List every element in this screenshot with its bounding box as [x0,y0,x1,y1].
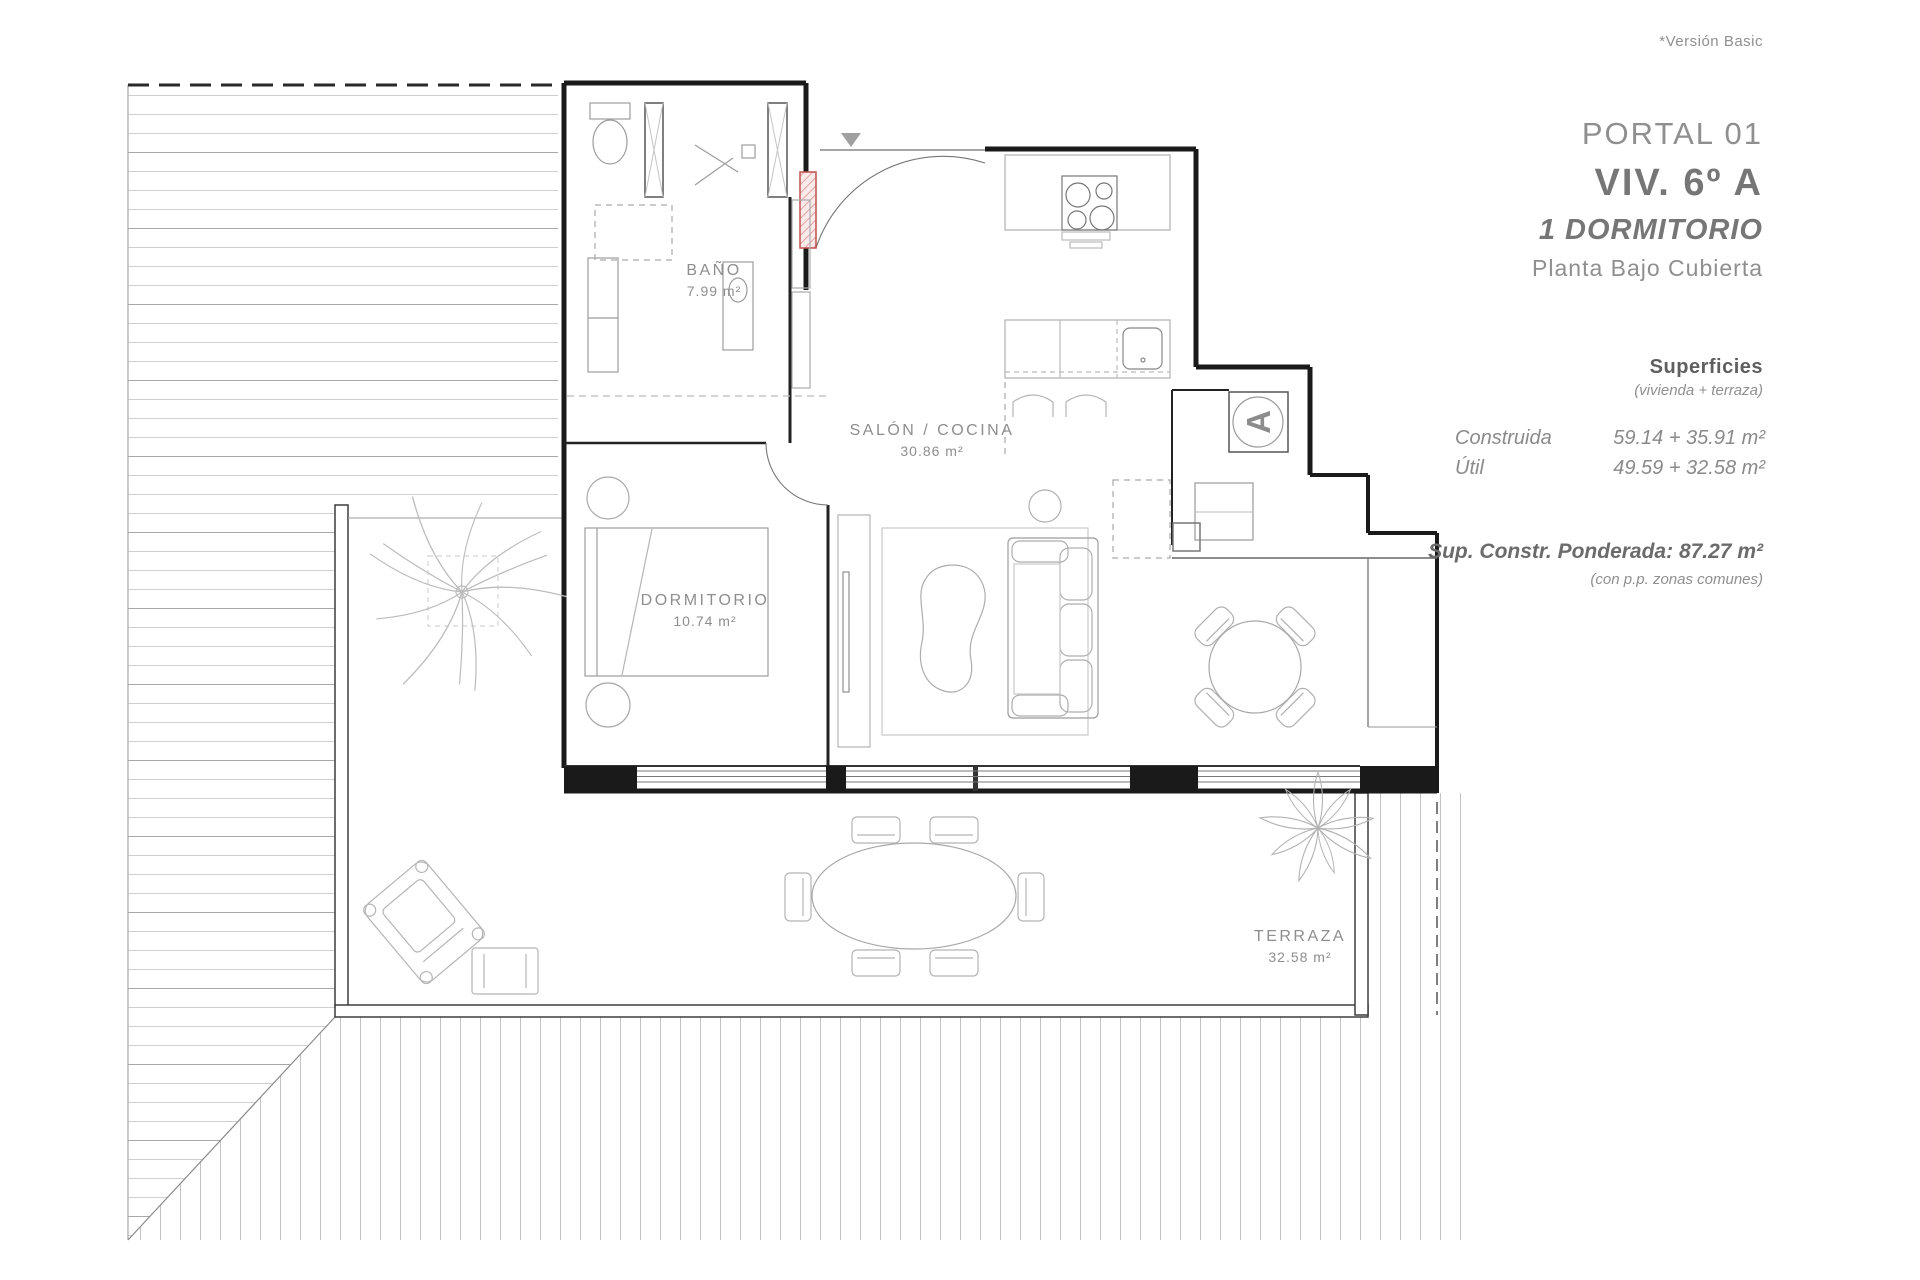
surface-value: 59.14 + 35.91 m² [1613,427,1765,450]
room-label-salon-cocina: SALÓN / COCINA 30.86 m² [850,422,1015,459]
dining-furniture [1192,604,1319,731]
surface-label: Construida [1455,427,1552,450]
unit-type: 1 DORMITORIO [1539,214,1763,247]
surface-label: Útil [1455,457,1484,480]
palm-tree [370,493,566,691]
table-row: Útil 49.59 + 32.58 m² [1455,457,1765,480]
room-area: 7.99 m² [686,283,741,299]
lounge-chair [361,858,487,986]
room-name: SALÓN / COCINA [850,422,1015,440]
terrace-furniture [361,817,1044,994]
room-area: 10.74 m² [641,613,770,629]
room-label-dormitorio: DORMITORIO 10.74 m² [641,592,770,629]
room-area: 32.58 m² [1254,949,1346,965]
surfaces-table: Construida 59.14 + 35.91 m² Útil 49.59 +… [1455,427,1765,487]
unit-letter: A [1240,410,1278,434]
version-note: *Versión Basic [1659,33,1763,50]
window-glazing [637,771,1360,782]
bathroom-fixtures [588,103,810,388]
portal-title: PORTAL 01 [1582,116,1763,152]
floorplan-page: BAÑO 7.99 m² SALÓN / COCINA 30.86 m² DOR… [0,0,1920,1280]
entry-arrow-icon [841,133,861,147]
room-label-bano: BAÑO 7.99 m² [686,262,741,299]
room-label-terraza: TERRAZA 32.58 m² [1254,928,1346,965]
terrace-walls [335,505,1368,1017]
surface-value: 49.59 + 32.58 m² [1613,457,1765,480]
ponderada-note: (con p.p. zonas comunes) [1590,571,1763,588]
entry-door [800,172,816,248]
table-row: Construida 59.14 + 35.91 m² [1455,427,1765,450]
window-band [564,766,1437,792]
floor-name: Planta Bajo Cubierta [1532,255,1763,282]
living-furniture [838,490,1098,747]
side-stool [472,948,538,994]
unit-letter-marker: A [1229,392,1288,452]
ponderada-line: Sup. Constr. Ponderada: 87.27 m² [1428,540,1763,564]
room-name: DORMITORIO [641,592,770,610]
surfaces-title: Superficies [1650,356,1763,379]
room-name: TERRAZA [1254,928,1346,946]
kitchen-fixtures [1005,155,1170,417]
unit-title: VIV. 6º A [1595,162,1763,205]
room-name: BAÑO [686,262,741,280]
room-area: 30.86 m² [850,443,1015,459]
surfaces-subtitle: (vivienda + terraza) [1634,382,1763,399]
